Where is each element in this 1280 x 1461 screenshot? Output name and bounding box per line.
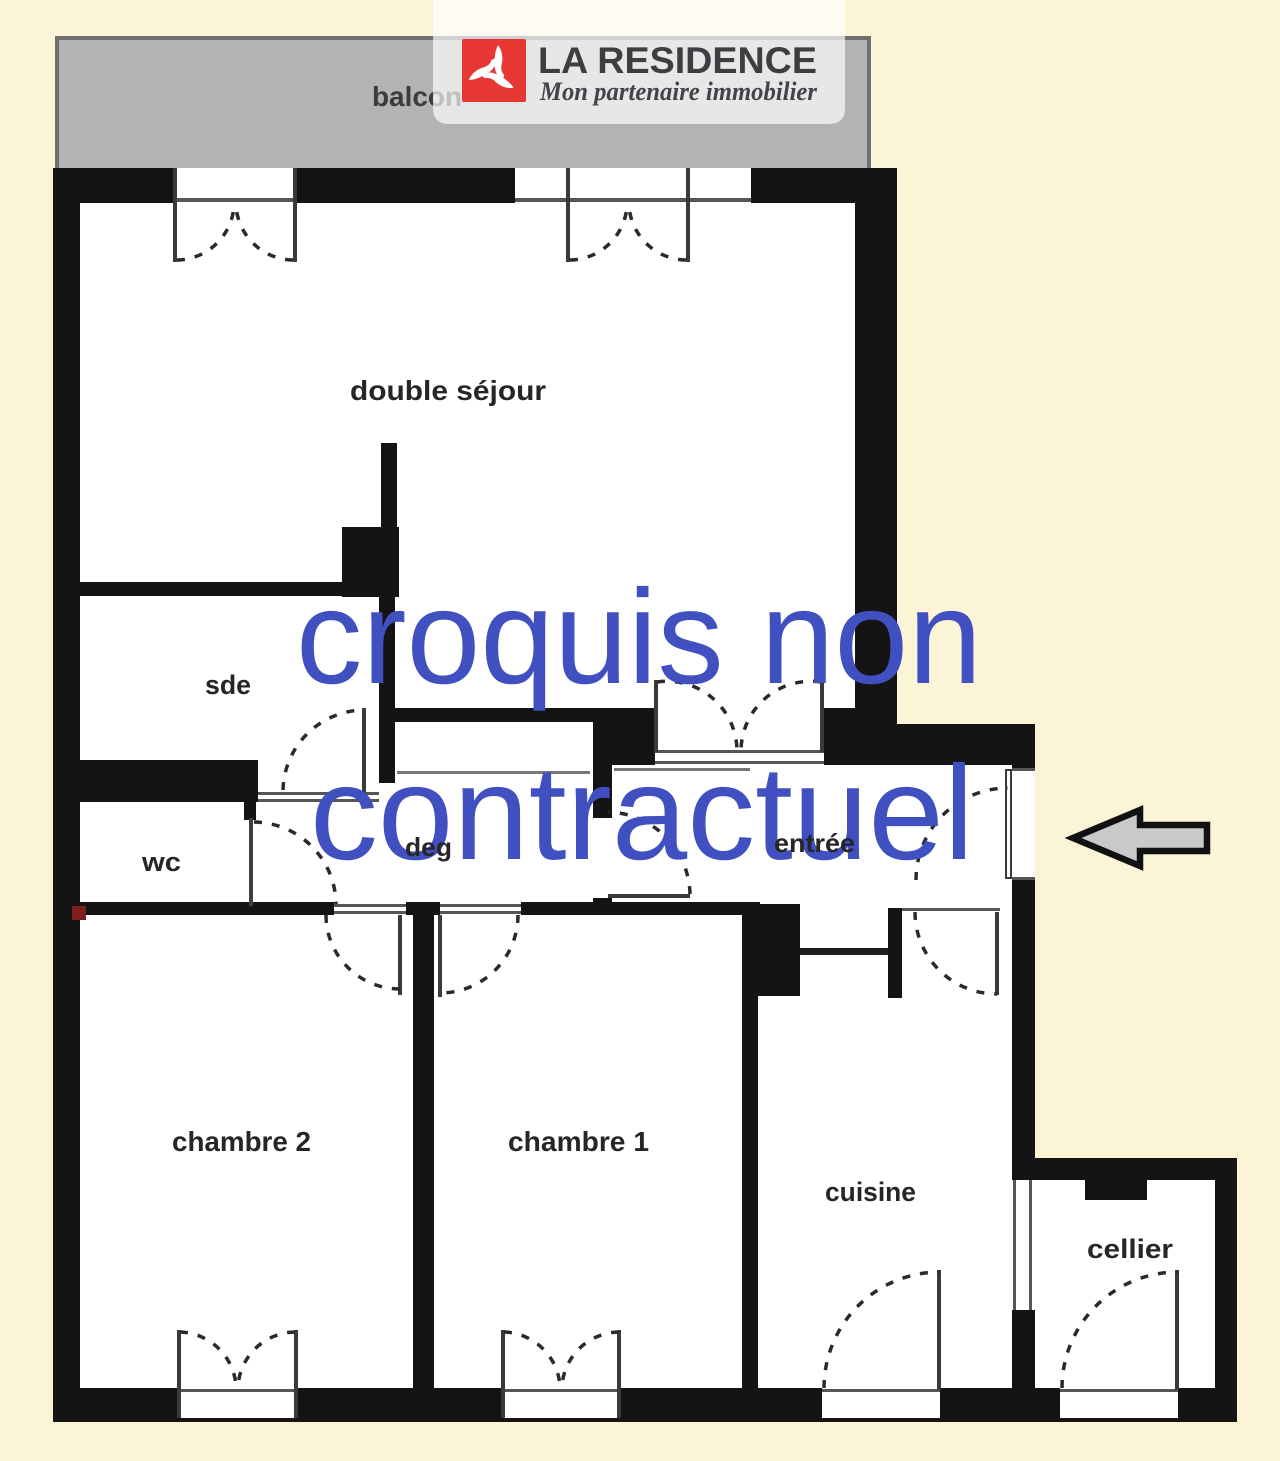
svg-text:contractuel: contractuel — [310, 739, 974, 888]
svg-text:cellier: cellier — [1087, 1234, 1174, 1264]
svg-text:entrée: entrée — [774, 828, 855, 858]
svg-text:LA RESIDENCE: LA RESIDENCE — [538, 40, 817, 81]
svg-text:chambre 1: chambre 1 — [508, 1126, 649, 1157]
svg-text:Mon partenaire immobilier: Mon partenaire immobilier — [539, 77, 818, 106]
svg-text:wc: wc — [141, 847, 181, 877]
svg-text:double séjour: double séjour — [350, 375, 546, 406]
svg-text:sde: sde — [205, 670, 251, 700]
svg-text:croquis non: croquis non — [296, 563, 982, 712]
svg-text:cuisine: cuisine — [825, 1177, 916, 1207]
svg-text:deg: deg — [405, 832, 452, 862]
svg-text:chambre 2: chambre 2 — [172, 1126, 311, 1157]
